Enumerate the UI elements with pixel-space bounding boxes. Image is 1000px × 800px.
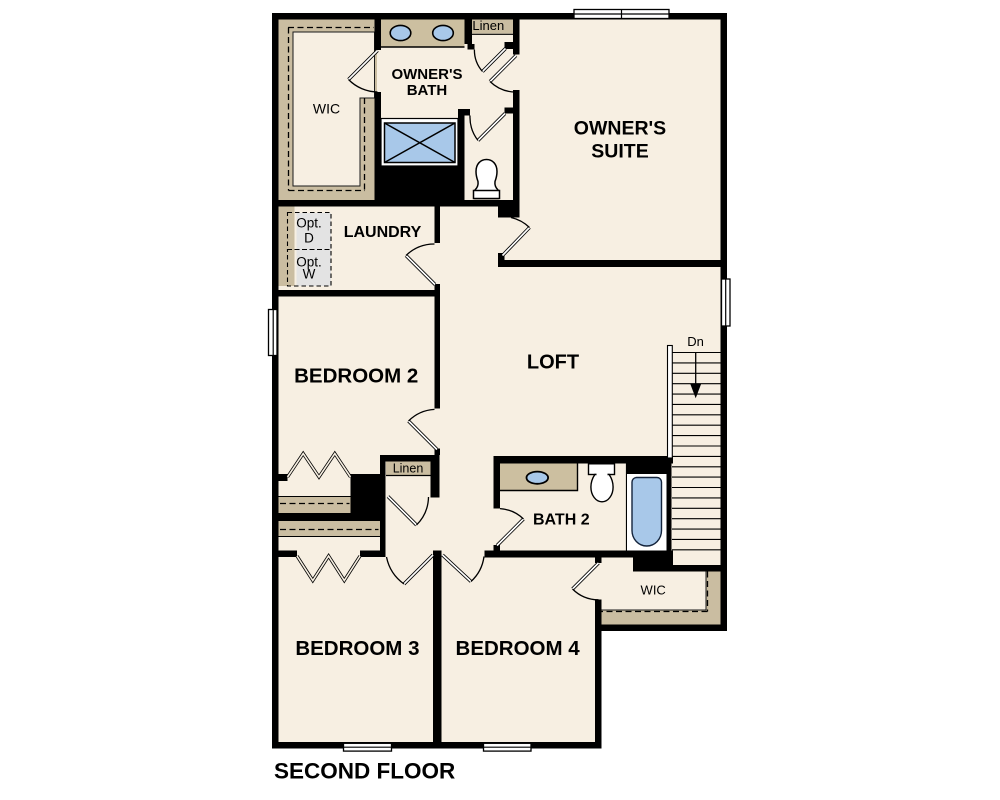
svg-text:Opt.: Opt. — [296, 216, 322, 231]
svg-text:BATH: BATH — [407, 82, 448, 99]
svg-text:Linen: Linen — [393, 462, 424, 476]
svg-text:D: D — [304, 230, 314, 245]
svg-text:BATH 2: BATH 2 — [533, 512, 590, 529]
svg-text:Dn: Dn — [687, 334, 704, 349]
svg-text:BEDROOM 4: BEDROOM 4 — [456, 637, 581, 660]
svg-text:BEDROOM 2: BEDROOM 2 — [294, 364, 418, 387]
svg-text:WIC: WIC — [313, 101, 340, 117]
svg-text:SECOND FLOOR: SECOND FLOOR — [274, 759, 455, 784]
svg-text:BEDROOM 3: BEDROOM 3 — [295, 637, 419, 660]
svg-text:SUITE: SUITE — [591, 141, 648, 163]
svg-text:LOFT: LOFT — [527, 352, 579, 374]
svg-text:LAUNDRY: LAUNDRY — [344, 224, 422, 241]
svg-text:OWNER'S: OWNER'S — [391, 66, 462, 83]
svg-text:W: W — [303, 267, 316, 282]
svg-text:WIC: WIC — [641, 582, 666, 597]
svg-text:Linen: Linen — [472, 18, 504, 33]
svg-text:OWNER'S: OWNER'S — [574, 118, 666, 140]
